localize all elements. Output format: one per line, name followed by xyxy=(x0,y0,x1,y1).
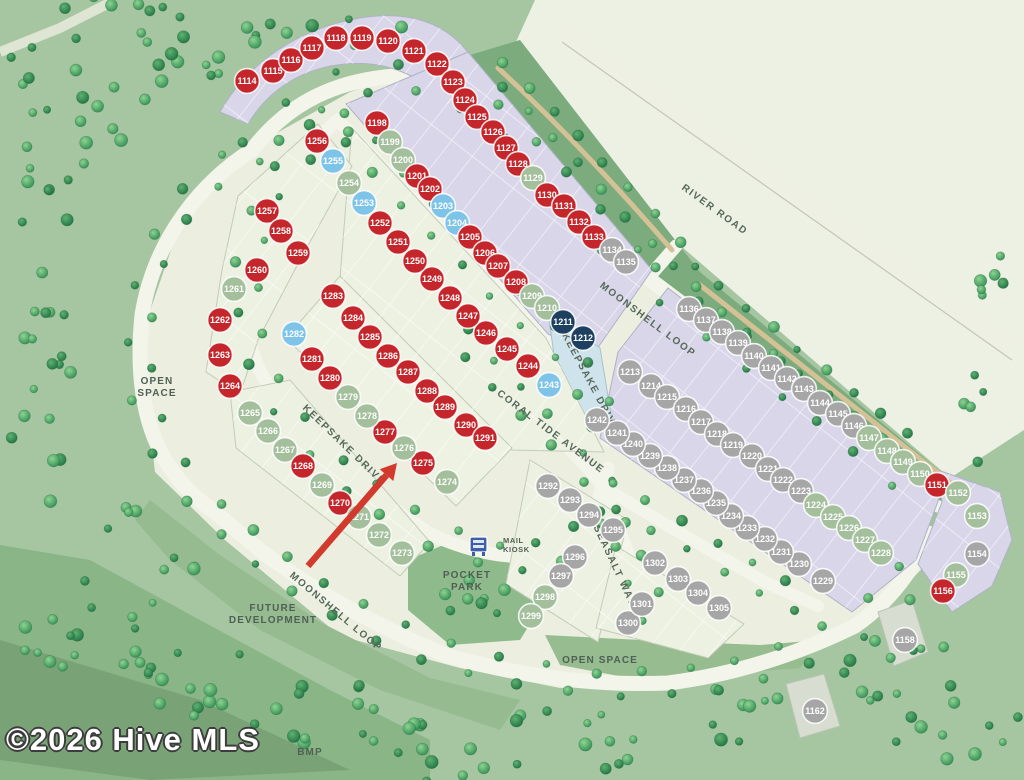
tree xyxy=(917,645,925,653)
lot-marker-1251[interactable]: 1251 xyxy=(386,230,411,255)
lot-marker-1291[interactable]: 1291 xyxy=(473,426,498,451)
lot-number: 1230 xyxy=(789,559,809,569)
lot-marker-1252[interactable]: 1252 xyxy=(368,211,393,236)
lot-number: 1285 xyxy=(360,332,380,342)
tree xyxy=(893,690,901,698)
tree xyxy=(497,57,508,68)
lot-marker-1228[interactable]: 1228 xyxy=(869,541,894,566)
lot-number: 1266 xyxy=(258,426,278,436)
tree xyxy=(359,730,366,737)
lot-number: 1250 xyxy=(405,256,425,266)
tree xyxy=(238,138,248,148)
lot-marker-1273[interactable]: 1273 xyxy=(390,541,415,566)
tree xyxy=(156,673,169,686)
tree xyxy=(948,697,960,709)
lot-number: 1202 xyxy=(420,184,440,194)
lot-marker-1152[interactable]: 1152 xyxy=(946,481,971,506)
lot-marker-1304[interactable]: 1304 xyxy=(686,581,711,606)
tree xyxy=(892,738,900,746)
lot-number: 1282 xyxy=(284,329,304,339)
lot-number: 1126 xyxy=(483,127,503,137)
tree xyxy=(549,133,558,142)
tree xyxy=(44,186,52,194)
lot-number: 1300 xyxy=(618,618,638,628)
tree xyxy=(319,578,329,588)
tree xyxy=(973,457,983,467)
tree xyxy=(282,552,292,562)
tree xyxy=(410,505,420,515)
tree xyxy=(579,477,588,486)
lot-number: 1277 xyxy=(375,427,395,437)
lot-number: 1129 xyxy=(523,173,543,183)
tree xyxy=(41,308,51,318)
tree xyxy=(7,53,16,62)
tree xyxy=(998,278,1009,289)
tree xyxy=(605,736,615,746)
lot-marker-1272[interactable]: 1272 xyxy=(367,523,392,548)
lot-number: 1154 xyxy=(967,549,987,559)
tree xyxy=(155,75,168,88)
tree xyxy=(23,72,34,83)
lot-number: 1241 xyxy=(607,428,627,438)
tree xyxy=(139,94,150,105)
tree xyxy=(294,689,304,699)
tree xyxy=(980,388,987,395)
lot-marker-1243[interactable]: 1243 xyxy=(537,373,562,398)
area-label-open-space: OPENSPACE xyxy=(137,376,176,399)
lot-number: 1162 xyxy=(805,706,825,716)
lot-marker-1294[interactable]: 1294 xyxy=(577,503,602,528)
tree xyxy=(182,496,193,507)
tree xyxy=(572,389,582,399)
tree xyxy=(850,388,859,397)
tree xyxy=(306,19,319,32)
lot-marker-1292[interactable]: 1292 xyxy=(536,474,561,499)
tree xyxy=(656,299,663,306)
tree xyxy=(300,734,310,744)
tree xyxy=(64,176,73,185)
tree xyxy=(488,383,496,391)
tree xyxy=(596,204,606,214)
lot-marker-1264[interactable]: 1264 xyxy=(218,374,243,399)
tree xyxy=(340,109,349,118)
tree xyxy=(394,749,402,757)
tree xyxy=(75,116,86,127)
tree xyxy=(622,754,633,765)
lot-number: 1255 xyxy=(323,156,343,166)
lot-number: 1264 xyxy=(220,381,240,391)
tree xyxy=(30,307,39,316)
tree xyxy=(108,124,119,135)
lot-number: 1257 xyxy=(257,206,277,216)
lot-number: 1232 xyxy=(755,534,775,544)
tree xyxy=(465,669,472,676)
lot-number: 1298 xyxy=(535,592,555,602)
lot-marker-1283[interactable]: 1283 xyxy=(321,284,346,309)
lot-marker-1287[interactable]: 1287 xyxy=(396,360,421,385)
lot-marker-1117[interactable]: 1117 xyxy=(300,36,325,61)
lot-number: 1117 xyxy=(302,43,321,53)
lot-number: 1143 xyxy=(794,384,814,394)
tree xyxy=(339,456,349,466)
tree xyxy=(617,693,625,701)
lot-number: 1229 xyxy=(813,576,833,586)
lot-number: 1207 xyxy=(488,261,508,271)
tree xyxy=(160,260,168,268)
tree xyxy=(669,262,677,270)
tree xyxy=(124,508,133,517)
lot-marker-1281[interactable]: 1281 xyxy=(300,347,325,372)
lot-marker-1120[interactable]: 1120 xyxy=(376,29,401,54)
lot-number: 1147 xyxy=(859,433,879,443)
tree xyxy=(971,371,979,379)
tree xyxy=(149,599,156,606)
lot-marker-1280[interactable]: 1280 xyxy=(318,366,343,391)
area-label-bmp: BMP xyxy=(297,747,323,758)
lot-marker-1245[interactable]: 1245 xyxy=(495,337,520,362)
tree xyxy=(634,246,641,253)
tree xyxy=(856,686,868,698)
tree xyxy=(48,614,58,624)
tree xyxy=(207,71,216,80)
lot-marker-1299[interactable]: 1299 xyxy=(519,604,544,629)
tree xyxy=(345,16,352,23)
tree xyxy=(563,686,573,696)
tree xyxy=(895,562,904,571)
tree xyxy=(236,651,244,659)
tree xyxy=(915,721,928,734)
tree xyxy=(531,538,540,547)
tree xyxy=(905,595,916,606)
tree xyxy=(423,541,434,552)
lot-marker-1262[interactable]: 1262 xyxy=(208,308,233,333)
tree xyxy=(258,329,267,338)
lot-marker-1259[interactable]: 1259 xyxy=(286,241,311,266)
lot-marker-1162[interactable]: 1162 xyxy=(803,699,828,724)
tree xyxy=(493,610,500,617)
tree xyxy=(47,358,58,369)
lot-number: 1291 xyxy=(475,433,495,443)
lot-marker-1212[interactable]: 1212 xyxy=(571,326,596,351)
lot-marker-1305[interactable]: 1305 xyxy=(707,596,732,621)
tree xyxy=(675,237,686,248)
tree xyxy=(462,594,473,605)
tree xyxy=(458,261,467,270)
lot-number: 1284 xyxy=(343,313,363,323)
lot-number: 1237 xyxy=(674,475,694,485)
tree xyxy=(181,214,192,225)
tree xyxy=(34,649,42,657)
lot-number: 1114 xyxy=(237,76,256,86)
lot-marker-1284[interactable]: 1284 xyxy=(341,306,366,331)
lot-number: 1239 xyxy=(640,451,660,461)
tree xyxy=(1013,713,1022,722)
tree xyxy=(873,691,883,701)
tree xyxy=(411,86,420,95)
tree xyxy=(248,35,261,48)
tree xyxy=(65,366,77,378)
tree xyxy=(620,212,631,223)
tree xyxy=(21,646,30,655)
tree xyxy=(510,714,523,727)
tree xyxy=(844,654,857,667)
tree xyxy=(153,59,165,71)
tree xyxy=(596,184,607,195)
tree xyxy=(133,0,144,10)
tree xyxy=(525,108,532,115)
tree xyxy=(779,393,786,400)
tree xyxy=(709,721,717,729)
tree xyxy=(22,175,35,188)
lot-number: 1115 xyxy=(263,66,282,76)
lot-number: 1262 xyxy=(210,315,230,325)
lot-number: 1205 xyxy=(460,232,480,242)
tree xyxy=(550,107,559,116)
tree xyxy=(756,590,763,597)
lot-marker-1266[interactable]: 1266 xyxy=(256,419,281,444)
lot-number: 1279 xyxy=(338,392,358,402)
tree xyxy=(637,666,647,676)
lot-number: 1259 xyxy=(288,248,308,258)
lot-marker-1248[interactable]: 1248 xyxy=(438,286,463,311)
tree xyxy=(318,107,325,114)
tree xyxy=(999,738,1006,745)
lot-marker-1274[interactable]: 1274 xyxy=(435,470,460,495)
lot-marker-1119[interactable]: 1119 xyxy=(350,26,375,51)
tree xyxy=(282,99,290,107)
tree xyxy=(561,167,571,177)
lot-marker-1256[interactable]: 1256 xyxy=(305,129,330,154)
lot-number: 1256 xyxy=(307,136,327,146)
lot-number: 1301 xyxy=(632,599,652,609)
lot-number: 1213 xyxy=(620,367,640,377)
tree xyxy=(476,597,488,609)
tree xyxy=(888,482,896,490)
tree xyxy=(600,763,611,774)
lot-number: 1208 xyxy=(506,277,526,287)
tree xyxy=(552,354,559,361)
tree xyxy=(188,562,201,575)
tree xyxy=(241,22,253,34)
tree xyxy=(148,449,158,459)
lot-marker-1268[interactable]: 1268 xyxy=(291,454,316,479)
tree xyxy=(447,639,456,648)
tree xyxy=(794,346,801,353)
lot-number: 1158 xyxy=(895,635,915,645)
lot-marker-1278[interactable]: 1278 xyxy=(355,404,380,429)
tree xyxy=(624,183,633,192)
lot-marker-1229[interactable]: 1229 xyxy=(811,569,836,594)
lot-marker-1258[interactable]: 1258 xyxy=(269,219,294,244)
tree xyxy=(473,558,483,568)
tree xyxy=(37,267,48,278)
lot-number: 1155 xyxy=(946,570,966,580)
tree xyxy=(647,526,656,535)
tree xyxy=(154,698,166,710)
lot-marker-1242[interactable]: 1242 xyxy=(585,408,610,433)
lot-number: 1123 xyxy=(443,77,463,87)
tree xyxy=(43,106,50,113)
lot-number: 1268 xyxy=(293,461,313,471)
tree xyxy=(61,214,73,226)
site-plan-map: MOONSHELL LOOPMOONSHELL LOOPKEEPSAKE DRI… xyxy=(0,0,1024,780)
tree xyxy=(367,167,378,178)
tree xyxy=(609,479,617,487)
tree xyxy=(270,161,280,171)
lot-number: 1119 xyxy=(352,33,371,43)
lot-number: 1116 xyxy=(281,55,300,65)
tree xyxy=(128,612,138,622)
tree xyxy=(160,565,169,574)
lot-marker-1263[interactable]: 1263 xyxy=(208,343,233,368)
lot-number: 1288 xyxy=(417,386,437,396)
tree xyxy=(497,82,507,92)
lot-marker-1285[interactable]: 1285 xyxy=(358,325,383,350)
lot-marker-1297[interactable]: 1297 xyxy=(549,564,574,589)
lot-number: 1303 xyxy=(668,574,688,584)
lot-marker-1286[interactable]: 1286 xyxy=(376,344,401,369)
tree xyxy=(189,711,198,720)
lot-number: 1245 xyxy=(497,344,517,354)
lot-number: 1265 xyxy=(240,408,260,418)
lot-number: 1144 xyxy=(810,398,830,408)
lot-marker-1279[interactable]: 1279 xyxy=(336,385,361,410)
lot-marker-1302[interactable]: 1302 xyxy=(643,551,668,576)
tree xyxy=(105,0,117,11)
tree xyxy=(513,760,521,768)
tree xyxy=(176,13,185,22)
tree xyxy=(354,680,365,691)
lot-number: 1272 xyxy=(369,530,389,540)
tree xyxy=(281,27,293,39)
lot-marker-1114[interactable]: 1114 xyxy=(235,69,260,94)
tree xyxy=(517,322,524,329)
lot-marker-1121[interactable]: 1121 xyxy=(402,39,427,64)
tree xyxy=(45,414,55,424)
tree xyxy=(863,593,873,603)
lot-number: 1260 xyxy=(247,265,267,275)
tree xyxy=(648,239,656,247)
tree xyxy=(165,47,178,60)
tree xyxy=(721,568,729,576)
tree xyxy=(455,527,463,535)
tree xyxy=(92,100,104,112)
lot-marker-1156[interactable]: 1156 xyxy=(931,579,956,604)
tree xyxy=(692,263,699,270)
tree xyxy=(458,771,468,780)
lot-marker-1261[interactable]: 1261 xyxy=(222,277,247,302)
lot-number: 1203 xyxy=(433,201,453,211)
lot-marker-1213[interactable]: 1213 xyxy=(618,360,643,385)
lot-marker-1301[interactable]: 1301 xyxy=(630,592,655,617)
tree xyxy=(352,698,364,710)
tree xyxy=(363,88,372,97)
lot-marker-1260[interactable]: 1260 xyxy=(245,258,270,283)
tree xyxy=(402,621,410,629)
lot-marker-1282[interactable]: 1282 xyxy=(282,322,307,347)
tree xyxy=(714,685,724,695)
lot-number: 1219 xyxy=(723,440,743,450)
tree xyxy=(70,64,82,76)
tree xyxy=(886,653,896,663)
tree xyxy=(676,515,687,526)
tree xyxy=(254,284,262,292)
lot-number: 1304 xyxy=(688,588,708,598)
lot-number: 1274 xyxy=(437,477,457,487)
lot-number: 1289 xyxy=(435,402,455,412)
tree xyxy=(691,282,701,292)
lot-marker-1254[interactable]: 1254 xyxy=(337,171,362,196)
tree xyxy=(464,743,476,755)
tree xyxy=(735,738,743,746)
tree xyxy=(202,61,210,69)
tree xyxy=(397,202,405,210)
lot-marker-1295[interactable]: 1295 xyxy=(601,518,626,543)
lot-number: 1211 xyxy=(553,317,573,327)
lot-marker-1289[interactable]: 1289 xyxy=(433,395,458,420)
lot-marker-1158[interactable]: 1158 xyxy=(893,628,918,653)
lot-marker-1135[interactable]: 1135 xyxy=(614,250,639,275)
tree xyxy=(654,587,664,597)
tree xyxy=(177,31,189,43)
lot-marker-1211[interactable]: 1211 xyxy=(551,310,576,335)
tree xyxy=(969,748,982,761)
lot-number: 1296 xyxy=(565,552,585,562)
lot-marker-1255[interactable]: 1255 xyxy=(321,149,346,174)
tree xyxy=(270,703,282,715)
tree xyxy=(44,656,56,668)
lot-number: 1133 xyxy=(584,232,604,242)
tree xyxy=(174,649,182,657)
lot-marker-1118[interactable]: 1118 xyxy=(324,26,349,51)
lot-number: 1275 xyxy=(413,458,433,468)
tree xyxy=(393,59,403,69)
lot-number: 1151 xyxy=(927,480,947,490)
lot-marker-1250[interactable]: 1250 xyxy=(403,249,428,274)
tree xyxy=(144,668,153,677)
lot-number: 1305 xyxy=(709,603,729,613)
lot-number: 1125 xyxy=(467,112,487,122)
tree xyxy=(938,731,947,740)
lot-number: 1263 xyxy=(210,350,230,360)
tree xyxy=(640,495,650,505)
lot-number: 1299 xyxy=(521,611,541,621)
tree xyxy=(822,365,833,376)
tree xyxy=(989,269,1000,280)
tree xyxy=(395,21,407,33)
tree xyxy=(478,762,490,774)
tree xyxy=(109,82,119,92)
lot-marker-1153[interactable]: 1153 xyxy=(965,504,990,529)
lot-number: 1244 xyxy=(518,361,538,371)
lot-marker-1154[interactable]: 1154 xyxy=(965,542,990,567)
tree xyxy=(359,599,369,609)
lot-marker-1244[interactable]: 1244 xyxy=(516,354,541,379)
tree xyxy=(58,662,68,672)
tree xyxy=(147,313,156,322)
tree xyxy=(306,155,316,165)
tree xyxy=(341,137,351,147)
tree xyxy=(427,232,435,240)
tree xyxy=(403,722,416,735)
tree xyxy=(906,712,917,723)
tree xyxy=(743,700,756,713)
tree xyxy=(573,158,582,167)
tree xyxy=(119,659,129,669)
lot-number: 1118 xyxy=(326,33,345,43)
tree xyxy=(115,134,128,147)
lot-number: 1290 xyxy=(456,420,476,430)
